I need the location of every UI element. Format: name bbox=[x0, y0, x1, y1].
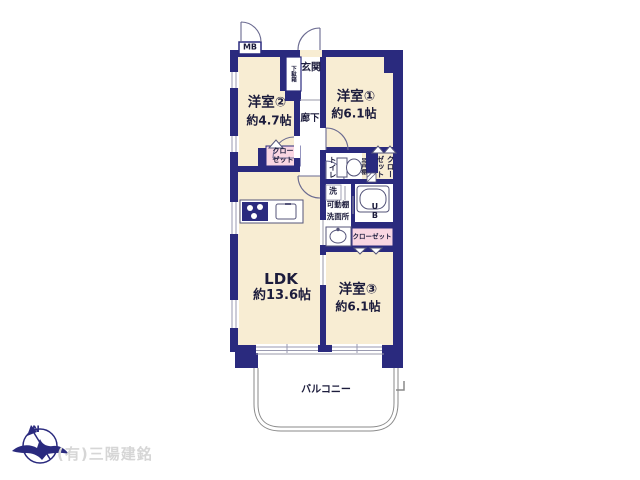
washroom-label: 洗面所 bbox=[327, 213, 350, 221]
entrance-label: 玄関 bbox=[301, 63, 321, 74]
hanging-shelf-label: 吊戸棚 bbox=[360, 156, 366, 176]
balcony-railing bbox=[256, 368, 404, 429]
unit-bath-label: UB bbox=[370, 202, 379, 220]
washbasin-icon bbox=[326, 227, 351, 246]
room1-name: 洋室① bbox=[337, 90, 375, 105]
toilet-label: トイレ bbox=[328, 154, 336, 180]
room2-size: 約4.7帖 bbox=[246, 114, 291, 127]
room3-name: 洋室③ bbox=[339, 283, 377, 298]
room1-size: 約6.1帖 bbox=[331, 107, 376, 120]
ldk-size: 約13.6帖 bbox=[253, 289, 311, 303]
room2-closet-label: クローゼット bbox=[272, 147, 295, 165]
hallway-label: 廊下 bbox=[300, 114, 319, 124]
room3-size: 約6.1帖 bbox=[335, 300, 380, 313]
washer-label: 洗 bbox=[329, 188, 337, 197]
shoe-cabinet-label: 下駄箱 bbox=[290, 66, 296, 83]
balcony-label: バルコニー bbox=[301, 385, 351, 396]
room1-closet-label: クローゼット bbox=[375, 155, 395, 180]
compass-north-label: N bbox=[32, 426, 40, 436]
company-watermark: (有)三陽建銘 bbox=[57, 446, 153, 463]
movable-shelf-label: 可動棚 bbox=[327, 201, 350, 209]
ldk-name: LDK bbox=[264, 271, 298, 288]
mb-label: MB bbox=[243, 44, 257, 53]
room3-closet-label: クローゼット bbox=[353, 233, 392, 240]
toilet-icon bbox=[337, 158, 362, 177]
kitchen-counter-icon bbox=[240, 200, 303, 223]
room2-name: 洋室② bbox=[248, 96, 286, 111]
floorplan-image: MB 玄関 下駄箱 廊下 洋室② 約4.7帖 洋室① 約6.1帖 クローゼット … bbox=[0, 0, 640, 480]
